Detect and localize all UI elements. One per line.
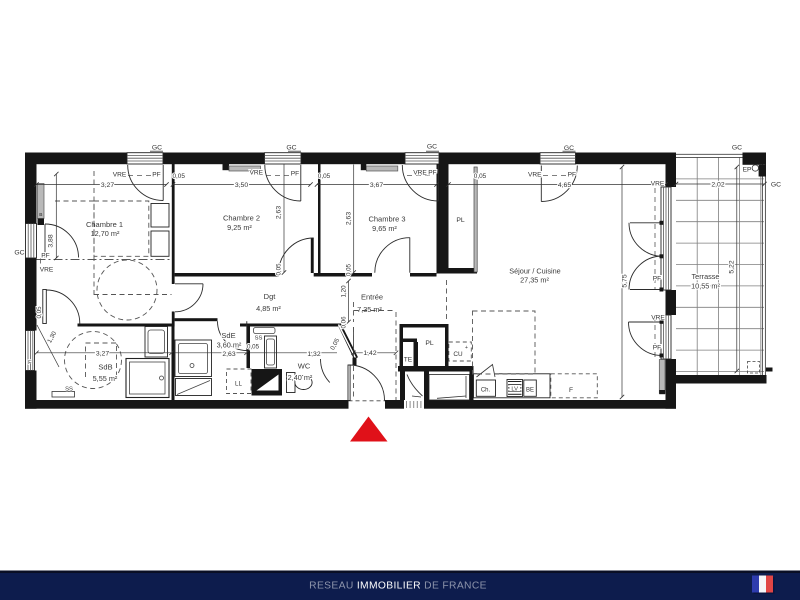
svg-text:3,50: 3,50 bbox=[235, 182, 248, 189]
svg-text:GC: GC bbox=[152, 145, 162, 152]
svg-text:LL: LL bbox=[235, 381, 242, 388]
svg-text:Ch.: Ch. bbox=[481, 388, 491, 394]
svg-text:GC: GC bbox=[732, 145, 742, 152]
svg-text:VRE: VRE bbox=[528, 172, 542, 179]
svg-text:CU: CU bbox=[453, 351, 463, 358]
svg-text:0,05: 0,05 bbox=[318, 173, 331, 180]
svg-text:1,32: 1,32 bbox=[307, 351, 320, 358]
svg-text:+: + bbox=[465, 345, 468, 351]
svg-text:PF: PF bbox=[41, 253, 49, 260]
svg-text:PL: PL bbox=[425, 340, 434, 347]
svg-text:1,20: 1,20 bbox=[341, 285, 348, 298]
svg-text:VRE: VRE bbox=[250, 170, 264, 177]
svg-text:5,22: 5,22 bbox=[729, 260, 736, 273]
svg-text:Chambre 1: Chambre 1 bbox=[86, 220, 123, 229]
svg-text:3,27: 3,27 bbox=[101, 182, 114, 189]
svg-text:4,85 m²: 4,85 m² bbox=[256, 304, 281, 313]
svg-text:GC: GC bbox=[14, 250, 24, 257]
svg-text:WC: WC bbox=[298, 362, 311, 371]
svg-text:2,02: 2,02 bbox=[711, 182, 724, 189]
svg-text:PF: PF bbox=[653, 345, 661, 352]
svg-text:TE: TE bbox=[404, 357, 413, 364]
svg-text:PF: PF bbox=[291, 171, 299, 178]
svg-text:PF: PF bbox=[428, 170, 436, 177]
svg-text:Séjour / Cuisine: Séjour / Cuisine bbox=[509, 267, 561, 276]
svg-text:9,65 m²: 9,65 m² bbox=[372, 224, 397, 233]
svg-text:Chambre 3: Chambre 3 bbox=[368, 215, 405, 224]
svg-text:SS: SS bbox=[255, 336, 263, 342]
svg-text:3,27: 3,27 bbox=[96, 351, 109, 358]
svg-text:B: B bbox=[39, 212, 42, 218]
svg-text:3,67: 3,67 bbox=[370, 182, 383, 189]
svg-text:27,35 m²: 27,35 m² bbox=[520, 276, 549, 285]
svg-text:GC: GC bbox=[427, 144, 437, 151]
svg-text:PF: PF bbox=[152, 172, 160, 179]
svg-text:Chambre 2: Chambre 2 bbox=[223, 214, 260, 223]
svg-text:2,63: 2,63 bbox=[222, 351, 235, 358]
svg-text:2,63: 2,63 bbox=[346, 212, 353, 225]
svg-text:RESEAU IMMOBILIER DE FRANCE: RESEAU IMMOBILIER DE FRANCE bbox=[309, 581, 487, 592]
svg-text:0,05: 0,05 bbox=[247, 344, 260, 351]
svg-text:F: F bbox=[569, 387, 573, 394]
svg-text:1,42: 1,42 bbox=[363, 350, 376, 357]
svg-text:PF: PF bbox=[653, 276, 661, 283]
svg-text:Dgt: Dgt bbox=[264, 292, 277, 301]
svg-text:0,05: 0,05 bbox=[346, 263, 353, 276]
svg-text:3,60 m²: 3,60 m² bbox=[217, 341, 242, 350]
svg-text:7,35 m²: 7,35 m² bbox=[357, 305, 382, 314]
svg-text:10,55 m²: 10,55 m² bbox=[691, 282, 720, 291]
svg-text:BE: BE bbox=[526, 388, 534, 394]
svg-text:2,40 m²: 2,40 m² bbox=[288, 373, 313, 382]
svg-text:SdE: SdE bbox=[221, 331, 235, 340]
svg-text:PL: PL bbox=[456, 217, 465, 224]
svg-text:PF: PF bbox=[568, 172, 576, 179]
svg-text:2,63: 2,63 bbox=[276, 206, 283, 219]
svg-text:Terrasse: Terrasse bbox=[692, 272, 720, 281]
svg-text:LV: LV bbox=[511, 386, 518, 392]
svg-text:VRE: VRE bbox=[113, 172, 127, 179]
svg-text:GC: GC bbox=[286, 145, 296, 152]
svg-text:VRE: VRE bbox=[40, 267, 54, 274]
svg-text:3,88: 3,88 bbox=[48, 234, 55, 247]
svg-text:VRE: VRE bbox=[651, 181, 665, 188]
svg-text:0,05: 0,05 bbox=[276, 263, 283, 276]
svg-text:SdB: SdB bbox=[98, 363, 112, 372]
svg-text:Entrée: Entrée bbox=[361, 293, 383, 302]
svg-text:GC: GC bbox=[564, 145, 574, 152]
svg-text:0,05: 0,05 bbox=[474, 173, 487, 180]
svg-text:EP: EP bbox=[743, 166, 752, 173]
svg-text:SS: SS bbox=[65, 387, 73, 393]
svg-text:5,55 m²: 5,55 m² bbox=[93, 374, 118, 383]
svg-text:0,06: 0,06 bbox=[341, 316, 348, 329]
svg-text:5,75: 5,75 bbox=[622, 274, 629, 287]
svg-text:VRE: VRE bbox=[651, 315, 665, 322]
svg-text:4,65: 4,65 bbox=[558, 182, 571, 189]
svg-text:0,05: 0,05 bbox=[172, 173, 185, 180]
svg-text:9,25 m²: 9,25 m² bbox=[227, 223, 252, 232]
svg-text:12,70 m²: 12,70 m² bbox=[91, 229, 120, 238]
svg-text:0,05: 0,05 bbox=[36, 306, 43, 319]
svg-text:VRE: VRE bbox=[413, 170, 427, 177]
svg-text:GC: GC bbox=[771, 182, 781, 189]
